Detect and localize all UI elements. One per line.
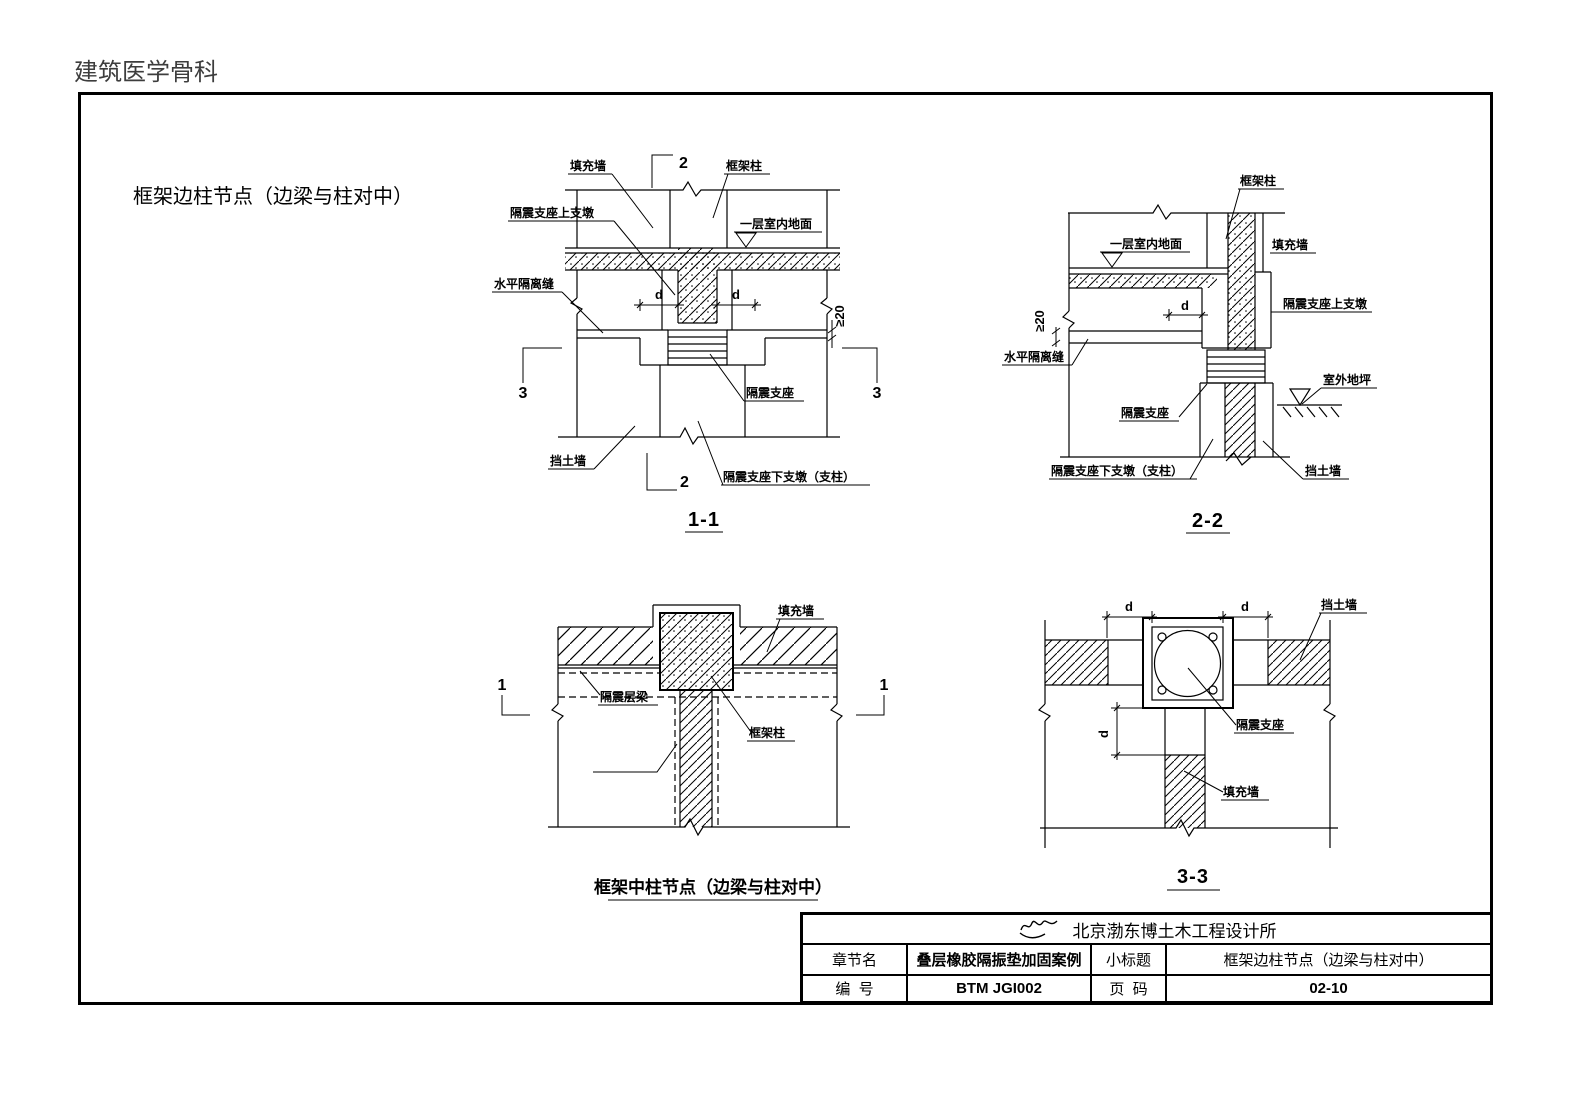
detail-section-3-3: 挡土墙 隔震支座 填充墙 d d d 3-3 bbox=[1030, 590, 1400, 905]
label-frame-column: 框架柱 bbox=[749, 725, 785, 740]
dim-d-right: d bbox=[1241, 599, 1249, 614]
label-bearing: 隔震支座 bbox=[746, 385, 794, 400]
section-1-1-texts: 填充墙 框架柱 隔震支座上支墩 一层室内地面 水平隔离缝 挡土墙 隔震支座 隔震… bbox=[494, 155, 882, 531]
caption-section-1-1: 1-1 bbox=[688, 509, 720, 531]
section-mark-3-right: 3 bbox=[873, 385, 882, 402]
label-horizontal-seam: 水平隔离缝 bbox=[494, 276, 554, 291]
number-label-cell: 编 号 bbox=[803, 976, 908, 1001]
mid-column-linework bbox=[548, 605, 850, 835]
page-value-cell: 02-10 bbox=[1167, 976, 1490, 1001]
label-bearing-lower-pier: 隔震支座下支墩（支柱） bbox=[1051, 463, 1183, 478]
label-retaining-wall: 挡土墙 bbox=[1305, 463, 1341, 478]
section-mark-1-left: 1 bbox=[498, 677, 507, 694]
detail-section-1-1: 填充墙 框架柱 隔震支座上支墩 一层室内地面 水平隔离缝 挡土墙 隔震支座 隔震… bbox=[480, 140, 900, 540]
dim-d: d bbox=[1181, 298, 1189, 313]
dim-d-left: d bbox=[655, 287, 663, 302]
dim-gap-20: ≥20 bbox=[832, 305, 847, 327]
number-value-cell: BTM JGI002 bbox=[908, 976, 1092, 1001]
label-horizontal-seam: 水平隔离缝 bbox=[1004, 349, 1064, 364]
detail-mid-column-node: 填充墙 隔震层梁 框架柱 1 1 框架中柱节点（边梁与柱对中） bbox=[490, 580, 910, 930]
label-isolation-beam: 隔震层梁 bbox=[600, 689, 648, 704]
page-label-cell: 页 码 bbox=[1092, 976, 1167, 1001]
label-infill-wall: 填充墙 bbox=[1223, 784, 1259, 799]
section-mark-3-left: 3 bbox=[519, 385, 528, 402]
label-infill-wall: 填充墙 bbox=[1272, 237, 1308, 252]
dim-d-left: d bbox=[1125, 599, 1133, 614]
page-watermark: 建筑医学骨科 bbox=[74, 52, 218, 87]
section-mark-1-right: 1 bbox=[880, 677, 889, 694]
label-indoor-floor: 一层室内地面 bbox=[1110, 236, 1182, 251]
label-infill-wall: 填充墙 bbox=[570, 158, 606, 173]
dim-gap-20: ≥20 bbox=[1032, 310, 1047, 332]
label-frame-column: 框架柱 bbox=[1240, 173, 1276, 188]
caption-section-2-2: 2-2 bbox=[1192, 510, 1224, 532]
dim-d-vertical: d bbox=[1096, 730, 1111, 738]
chapter-value-cell: 叠层橡胶隔振垫加固案例 bbox=[908, 945, 1092, 976]
section-mark-2-top: 2 bbox=[679, 155, 688, 172]
label-frame-column: 框架柱 bbox=[726, 158, 762, 173]
subtitle-value-cell: 框架边柱节点（边梁与柱对中） bbox=[1167, 945, 1490, 976]
dim-d-right: d bbox=[732, 287, 740, 302]
title-block: 北京渤东博土木工程设计所 章节名 叠层橡胶隔振垫加固案例 小标题 框架边柱节点（… bbox=[800, 912, 1493, 1004]
caption-section-3-3: 3-3 bbox=[1177, 866, 1209, 888]
logo-scribble-icon bbox=[1017, 916, 1063, 942]
label-retaining-wall: 挡土墙 bbox=[550, 453, 586, 468]
chapter-label-cell: 章节名 bbox=[803, 945, 908, 976]
caption-mid-column-node: 框架中柱节点（边梁与柱对中） bbox=[594, 877, 832, 897]
label-bearing: 隔震支座 bbox=[1121, 405, 1169, 420]
company-name: 北京渤东博土木工程设计所 bbox=[1073, 917, 1277, 942]
subtitle-label-cell: 小标题 bbox=[1092, 945, 1167, 976]
label-bearing-lower-pier: 隔震支座下支墩（支柱） bbox=[723, 469, 855, 484]
label-retaining-wall: 挡土墙 bbox=[1321, 597, 1357, 612]
label-bearing-upper-pier: 隔震支座上支墩 bbox=[1283, 296, 1368, 311]
unlabeled-leader bbox=[593, 744, 677, 772]
section-mark-2-bottom: 2 bbox=[680, 474, 689, 491]
label-indoor-floor: 一层室内地面 bbox=[740, 216, 812, 231]
label-outdoor-ground: 室外地坪 bbox=[1323, 372, 1371, 387]
label-bearing-upper-pier: 隔震支座上支墩 bbox=[510, 205, 595, 220]
label-infill-wall: 填充墙 bbox=[778, 603, 814, 618]
drawing-sheet: 建筑医学骨科 框架边柱节点（边梁与柱对中） bbox=[0, 0, 1571, 1098]
page-title: 框架边柱节点（边梁与柱对中） bbox=[133, 180, 413, 209]
section-2-2-texts: 框架柱 填充墙 一层室内地面 隔震支座上支墩 水平隔离缝 隔震支座 隔震支座下支… bbox=[1004, 173, 1371, 532]
title-block-header: 北京渤东博土木工程设计所 bbox=[803, 915, 1490, 945]
detail-section-2-2: 框架柱 填充墙 一层室内地面 隔震支座上支墩 水平隔离缝 隔震支座 隔震支座下支… bbox=[990, 165, 1430, 545]
label-bearing: 隔震支座 bbox=[1236, 717, 1284, 732]
